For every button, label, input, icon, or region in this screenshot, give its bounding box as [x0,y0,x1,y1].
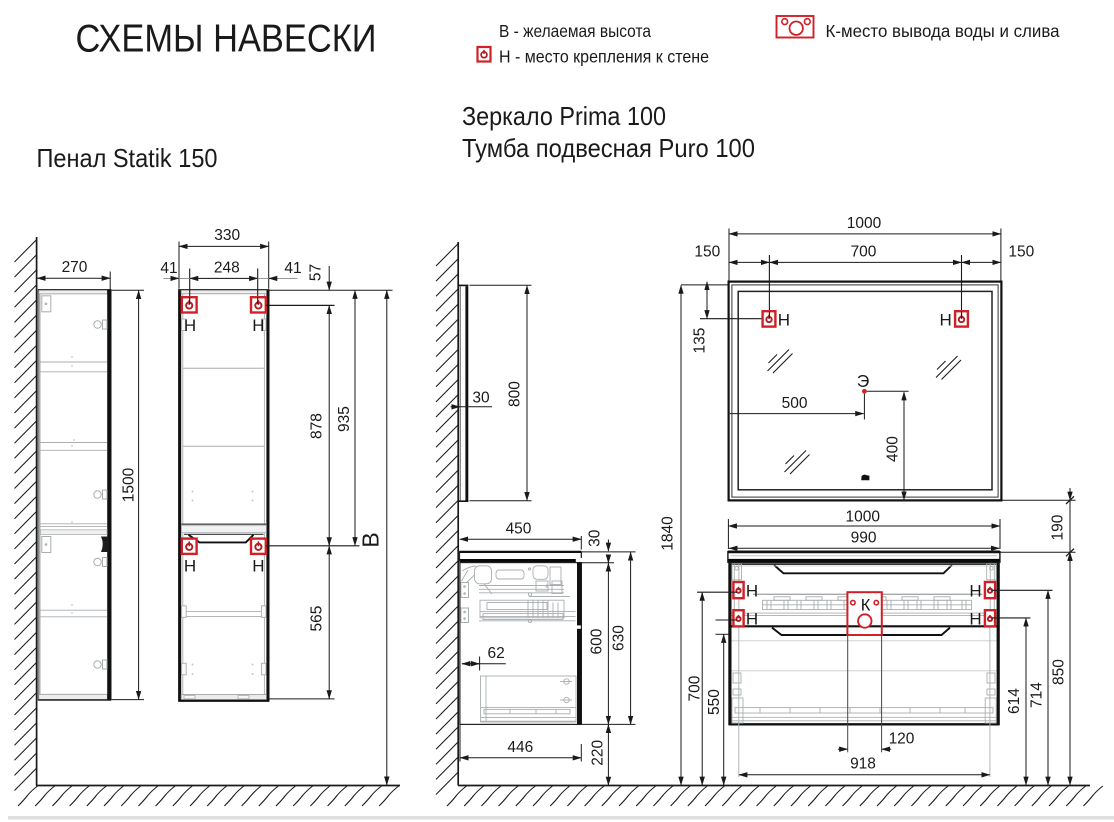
svg-text:30: 30 [587,529,604,547]
svg-text:Н: Н [969,581,981,600]
svg-text:1840: 1840 [660,516,677,551]
svg-text:614: 614 [1006,688,1023,714]
svg-text:135: 135 [692,328,709,354]
svg-text:1000: 1000 [847,215,882,232]
svg-text:565: 565 [309,606,326,632]
svg-text:Н: Н [184,316,196,335]
svg-text:Тумба подвесная Puro 100: Тумба подвесная Puro 100 [462,133,755,163]
svg-text:630: 630 [611,625,628,651]
svg-text:878: 878 [309,413,326,439]
svg-text:В - желаемая высота: В - желаемая высота [499,21,651,41]
svg-text:Н: Н [746,581,758,600]
svg-text:62: 62 [488,645,505,662]
svg-text:Зеркало Prima 100: Зеркало Prima 100 [462,101,666,131]
svg-text:850: 850 [1051,659,1068,685]
svg-text:446: 446 [507,739,533,756]
svg-text:990: 990 [851,529,877,546]
svg-text:700: 700 [686,675,703,701]
svg-text:Н: Н [184,557,196,576]
svg-text:714: 714 [1029,682,1046,708]
svg-text:30: 30 [472,389,490,406]
svg-text:150: 150 [694,244,720,261]
svg-text:Н: Н [252,557,264,576]
svg-text:Н: Н [969,610,981,629]
svg-text:В: В [358,532,384,547]
svg-text:1000: 1000 [846,509,881,526]
svg-text:150: 150 [1008,244,1034,261]
svg-text:800: 800 [507,381,524,407]
svg-text:330: 330 [214,227,240,244]
svg-text:41: 41 [160,260,177,277]
svg-text:Н: Н [252,316,264,335]
svg-text:918: 918 [850,755,876,772]
svg-text:Э: Э [857,371,870,391]
svg-text:Пенал Statik 150: Пенал Statik 150 [37,143,218,173]
svg-text:Н: Н [778,311,790,330]
svg-text:190: 190 [1050,514,1067,540]
svg-text:57: 57 [307,264,324,281]
svg-text:400: 400 [885,436,902,462]
svg-text:41: 41 [284,260,301,277]
svg-text:700: 700 [851,244,877,261]
svg-text:248: 248 [214,259,240,276]
svg-text:1500: 1500 [121,467,138,502]
svg-text:Н: Н [940,311,952,330]
svg-text:СХЕМЫ НАВЕСКИ: СХЕМЫ НАВЕСКИ [76,18,377,61]
svg-text:500: 500 [782,395,808,412]
svg-text:220: 220 [590,739,607,765]
svg-text:Н - место крепления к стене: Н - место крепления к стене [499,47,709,67]
svg-text:270: 270 [62,259,88,276]
svg-text:550: 550 [706,689,723,715]
svg-text:450: 450 [506,521,532,538]
svg-text:600: 600 [588,628,605,654]
svg-text:935: 935 [336,406,353,432]
svg-text:120: 120 [889,731,915,748]
svg-text:К-место вывода воды и слива: К-место вывода воды и слива [826,21,1060,41]
svg-text:Н: Н [746,610,758,629]
svg-text:К: К [861,596,871,614]
